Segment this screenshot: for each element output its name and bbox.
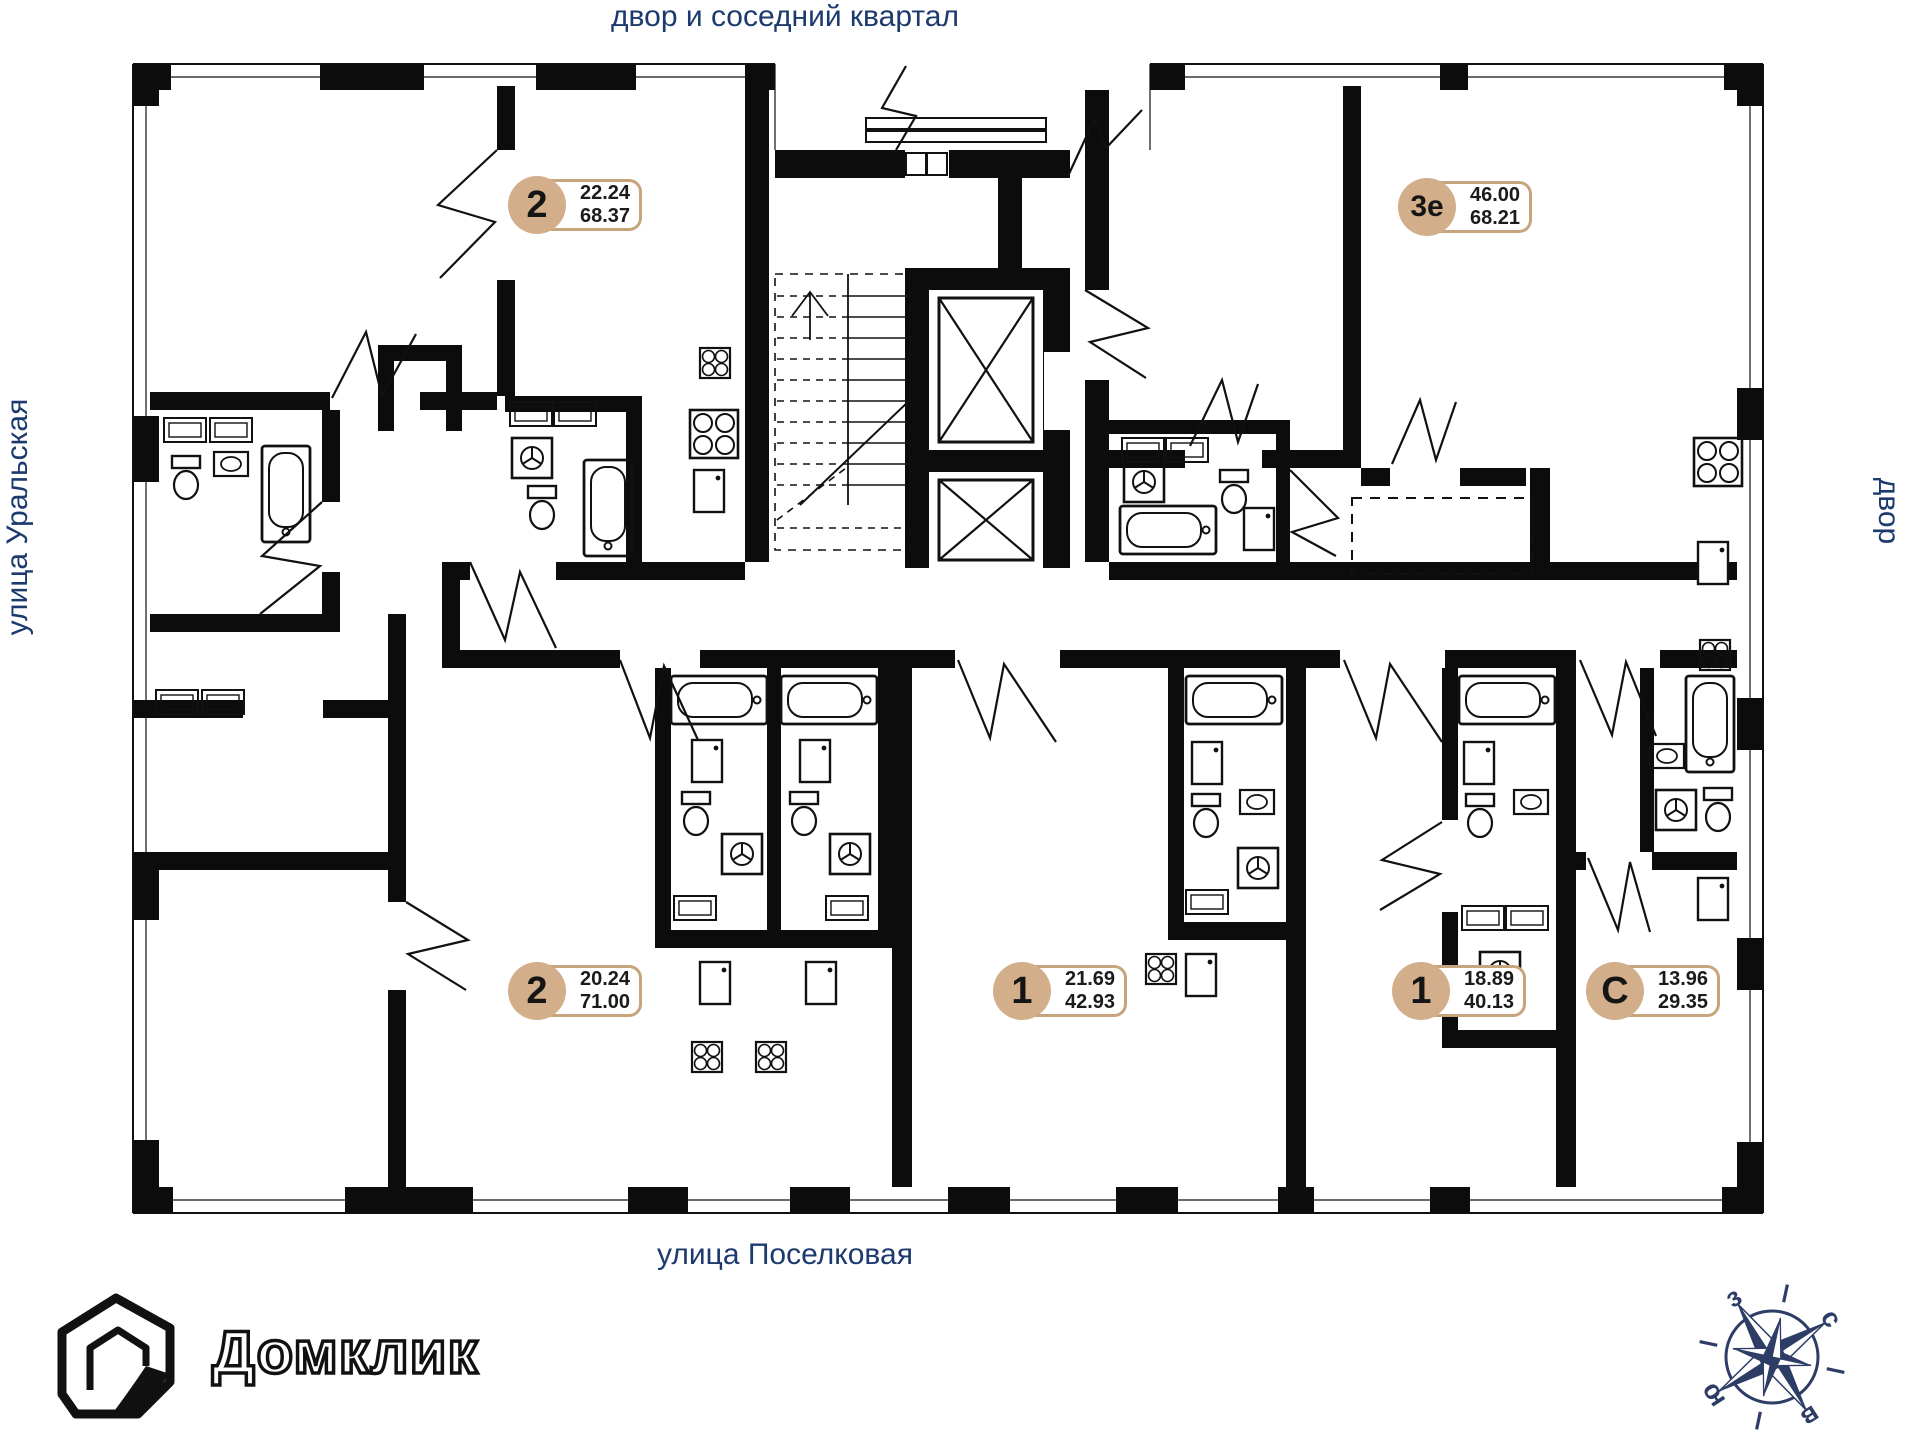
door-leaf-icon (1698, 542, 1728, 584)
washing-machine-icon (830, 834, 870, 874)
door-leaf-icon (692, 740, 722, 782)
toilet-icon (682, 792, 710, 835)
unit-badge-studio[interactable]: С 13.96 29.35 (1586, 962, 1720, 1020)
cabinet-icon (210, 418, 252, 442)
toilet-icon (528, 486, 556, 529)
vent-grille-icon (692, 1042, 722, 1072)
cabinet-icon (164, 418, 206, 442)
stove-icon (690, 410, 738, 458)
bathtub-icon (584, 460, 632, 556)
cabinet-icon (1506, 906, 1548, 930)
door-leaf-icon (694, 470, 724, 512)
toilet-icon (1192, 794, 1220, 837)
compass-south-label: ю (1694, 1378, 1732, 1414)
cabinet-icon (826, 896, 868, 920)
bathtub-icon (781, 676, 877, 724)
domclick-logo-text: Домклик (212, 1318, 479, 1387)
vent-grille-icon (1146, 954, 1176, 984)
stove-icon (1694, 438, 1742, 486)
washing-machine-icon (512, 438, 552, 478)
compass-west-label: з (1720, 1281, 1748, 1313)
bathtub-icon (1186, 676, 1282, 724)
door-leaf-icon (1698, 878, 1728, 920)
unit-total-area: 71.00 (580, 991, 630, 1014)
unit-type: 1 (993, 962, 1051, 1020)
door-leaf-icon (1192, 742, 1222, 784)
toilet-icon (172, 456, 200, 499)
unit-living-area: 18.89 (1464, 968, 1514, 991)
sink-icon (1650, 744, 1684, 768)
bathtub-icon (1459, 676, 1555, 724)
toilet-icon (1704, 788, 1732, 831)
unit-badge-3e[interactable]: 3е 46.00 68.21 (1398, 178, 1532, 236)
domclick-logo-icon (62, 1298, 170, 1414)
unit-total-area: 29.35 (1658, 991, 1708, 1014)
unit-total-area: 68.37 (580, 205, 630, 228)
unit-type: 1 (1392, 962, 1450, 1020)
compass-rose: с в ю з (1653, 1238, 1891, 1436)
washing-machine-icon (1656, 790, 1696, 830)
unit-type: С (1586, 962, 1644, 1020)
unit-living-area: 13.96 (1658, 968, 1708, 991)
unit-type: 2 (508, 962, 566, 1020)
unit-total-area: 42.93 (1065, 991, 1115, 1014)
bathtub-icon (671, 676, 767, 724)
walls (133, 64, 1763, 1213)
toilet-icon (790, 792, 818, 835)
cabinet-icon (674, 896, 716, 920)
bathtub-icon (1686, 676, 1734, 772)
door-leaf-icon (1244, 508, 1274, 550)
door-leaf-icon (806, 962, 836, 1004)
toilet-icon (1466, 794, 1494, 837)
bathtub-icon (262, 446, 310, 542)
unit-living-area: 21.69 (1065, 968, 1115, 991)
door-leaf-icon (1464, 742, 1494, 784)
street-label-top: двор и соседний квартал (0, 0, 1570, 34)
vent-grille-icon (700, 348, 730, 378)
unit-total-area: 68.21 (1470, 207, 1520, 230)
unit-badge-1-mid[interactable]: 1 21.69 42.93 (993, 962, 1127, 1020)
cabinet-icon (1462, 906, 1504, 930)
unit-living-area: 22.24 (580, 182, 630, 205)
door-leaf-icon (700, 962, 730, 1004)
unit-badge-2-top[interactable]: 2 22.24 68.37 (508, 176, 642, 234)
cabinet-icon (1186, 890, 1228, 914)
street-label-left: улица Уральская (1, 392, 35, 642)
sink-icon (214, 452, 248, 476)
washing-machine-icon (722, 834, 762, 874)
street-label-bottom: улица Поселковая (0, 1238, 1570, 1272)
washing-machine-icon (1238, 848, 1278, 888)
staircase (775, 274, 910, 550)
toilet-icon (1220, 470, 1248, 513)
stairs-up-arrow (792, 292, 828, 340)
unit-badge-2-bottom[interactable]: 2 20.24 71.00 (508, 962, 642, 1020)
street-label-right: двор (1871, 451, 1905, 571)
unit-badge-1-right[interactable]: 1 18.89 40.13 (1392, 962, 1526, 1020)
bathtub-icon (1120, 506, 1216, 554)
unit-living-area: 20.24 (580, 968, 630, 991)
vent-grille-icon (756, 1042, 786, 1072)
sink-icon (1240, 790, 1274, 814)
unit-type: 3е (1398, 178, 1456, 236)
sink-icon (1514, 790, 1548, 814)
unit-living-area: 46.00 (1470, 184, 1520, 207)
unit-total-area: 40.13 (1464, 991, 1514, 1014)
unit-type: 2 (508, 176, 566, 234)
floor-plan: с в ю з (0, 0, 1920, 1436)
door-leaf-icon (800, 740, 830, 782)
door-leaf-icon (1186, 954, 1216, 996)
